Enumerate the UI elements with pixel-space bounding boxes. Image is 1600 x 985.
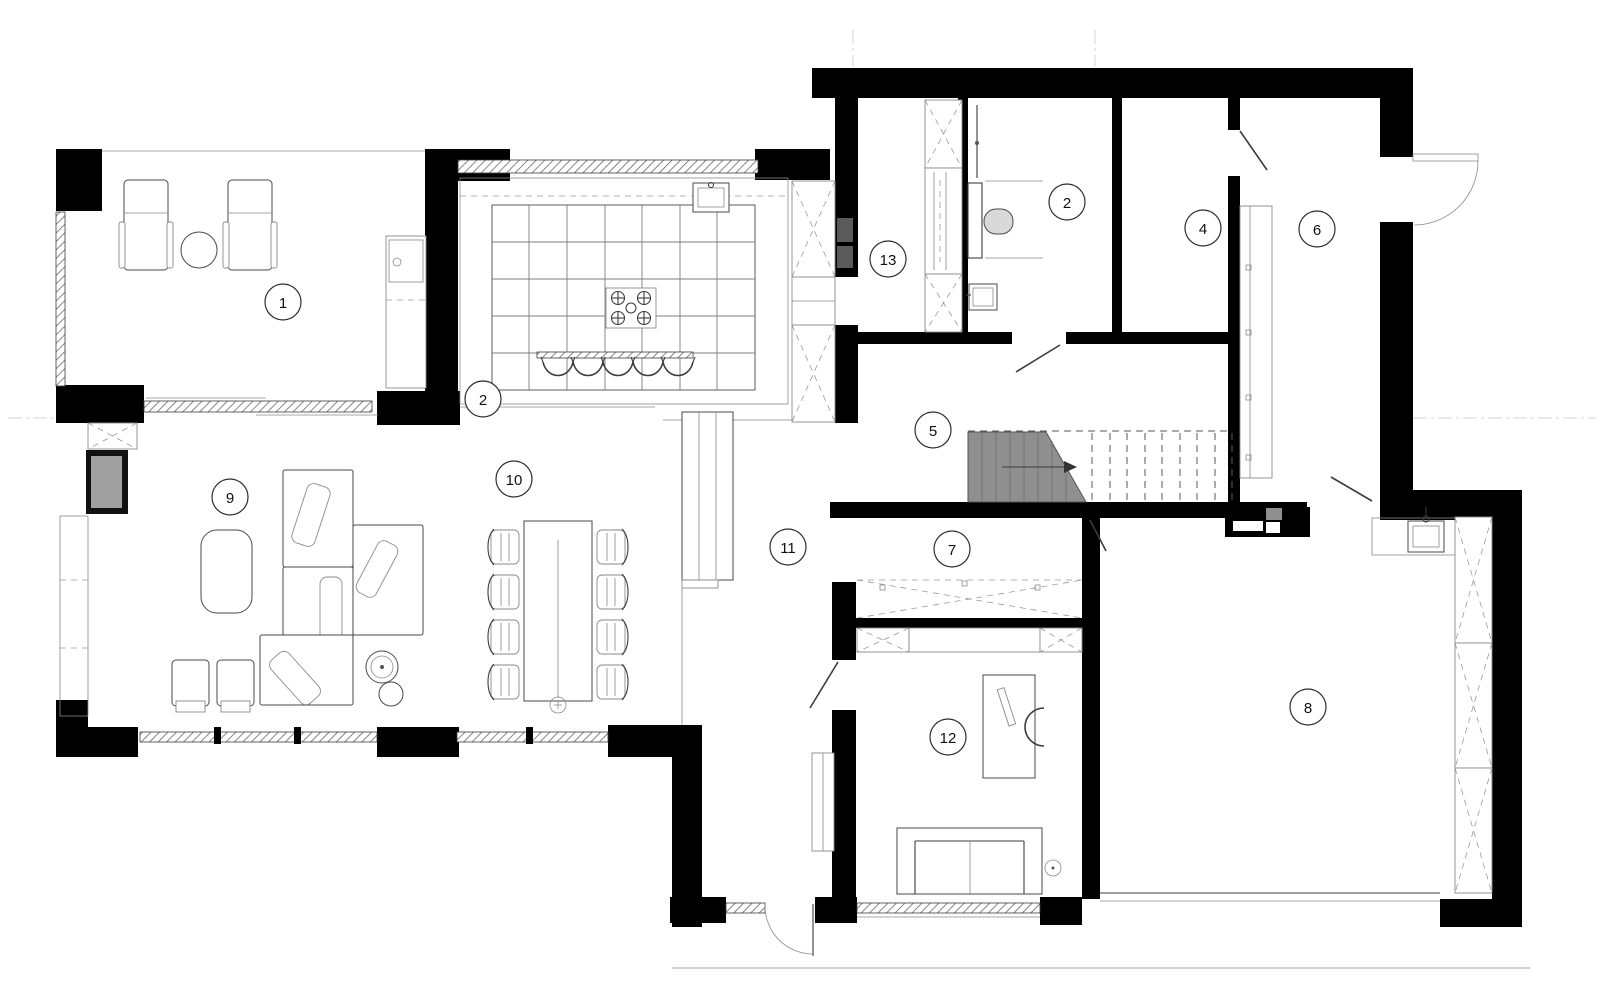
oven [837,218,853,242]
desk [983,675,1035,778]
lounge-chair-2 [223,180,277,270]
room-marker-11: 11 [770,529,806,565]
floor-plan-canvas: 1 2 2 4 5 6 7 8 9 10 11 12 13 [0,0,1600,985]
kitchen-sink [693,183,729,213]
dining-area [488,412,733,725]
room-marker-8: 8 [1290,689,1326,725]
svg-text:6: 6 [1313,222,1321,239]
room-marker-10: 10 [496,461,532,497]
lounge-chair-1 [119,180,173,270]
tall-cabinet [682,412,733,588]
svg-text:13: 13 [880,252,897,269]
pantry-13 [925,100,962,332]
office [857,628,1082,894]
window-terrace-left [56,212,65,386]
room-marker-2-kitchen: 2 [465,381,501,417]
bar-stools [541,357,695,376]
window-living-south-1 [140,732,377,742]
room-marker-12: 12 [930,719,966,755]
corridor [812,753,834,851]
svg-text:11: 11 [780,540,796,557]
hall-to-room8-door-leaf [1331,477,1372,501]
terrace-counter [386,236,426,388]
room-marker-4: 4 [1185,210,1221,246]
terrace [119,180,426,388]
toilet [984,209,1013,234]
armchairs [172,660,254,712]
svg-text:9: 9 [226,490,234,507]
sliding-door-terrace [144,401,372,412]
svg-text:2: 2 [479,392,487,409]
svg-text:8: 8 [1304,700,1312,717]
room8-wardrobes [1455,517,1492,893]
floor-plan-drawing: 1 2 2 4 5 6 7 8 9 10 11 12 13 [0,0,1600,985]
fireplace [86,423,137,514]
room-marker-6: 6 [1299,211,1335,247]
room-marker-5: 5 [915,412,951,448]
wall-shelf [60,516,88,716]
office-sofa [897,828,1042,894]
terrace-table [181,232,217,268]
equipment-box [1266,508,1282,520]
entrance-door-panel [1413,154,1478,161]
room-marker-9: 9 [212,479,248,515]
entrance-door-swing [1414,161,1478,225]
staircase [968,431,1232,502]
svg-text:1: 1 [279,295,287,312]
window-office-south [857,903,1040,913]
room-marker-7: 7 [934,531,970,567]
sofa-set [260,470,423,708]
room8 [1372,507,1492,893]
island-front-edge [537,352,693,358]
room-marker-13: 13 [870,241,906,277]
living-room [60,423,423,716]
office-door-leaf [810,662,838,708]
corridor-exterior-door-swing [765,906,813,954]
coffee-table [201,530,252,613]
stair-treads-dashed [1092,433,1232,501]
cooktop [606,288,656,328]
walls [56,68,1522,927]
kitchen [460,178,853,422]
svg-text:5: 5 [929,423,937,440]
svg-text:10: 10 [506,472,523,489]
svg-text:4: 4 [1199,221,1207,238]
svg-text:7: 7 [948,542,956,559]
room-marker-2-bathroom: 2 [1049,184,1085,220]
room4-door-leaf [1240,131,1267,170]
bathroom [966,105,1043,310]
toilet-cistern [968,183,982,258]
side-tables [366,651,403,706]
bathroom-door-leaf [1016,345,1060,372]
entry-closet [1240,206,1272,478]
bathroom-sink [966,284,997,310]
office-wardrobes [857,628,1082,652]
svg-text:12: 12 [940,730,957,747]
window-corridor-south [726,903,765,913]
room-marker-1: 1 [265,284,301,320]
microwave [837,246,853,268]
room7-closet-zone [857,580,1082,618]
window-kitchen-top [458,160,758,173]
svg-text:2: 2 [1063,195,1071,212]
